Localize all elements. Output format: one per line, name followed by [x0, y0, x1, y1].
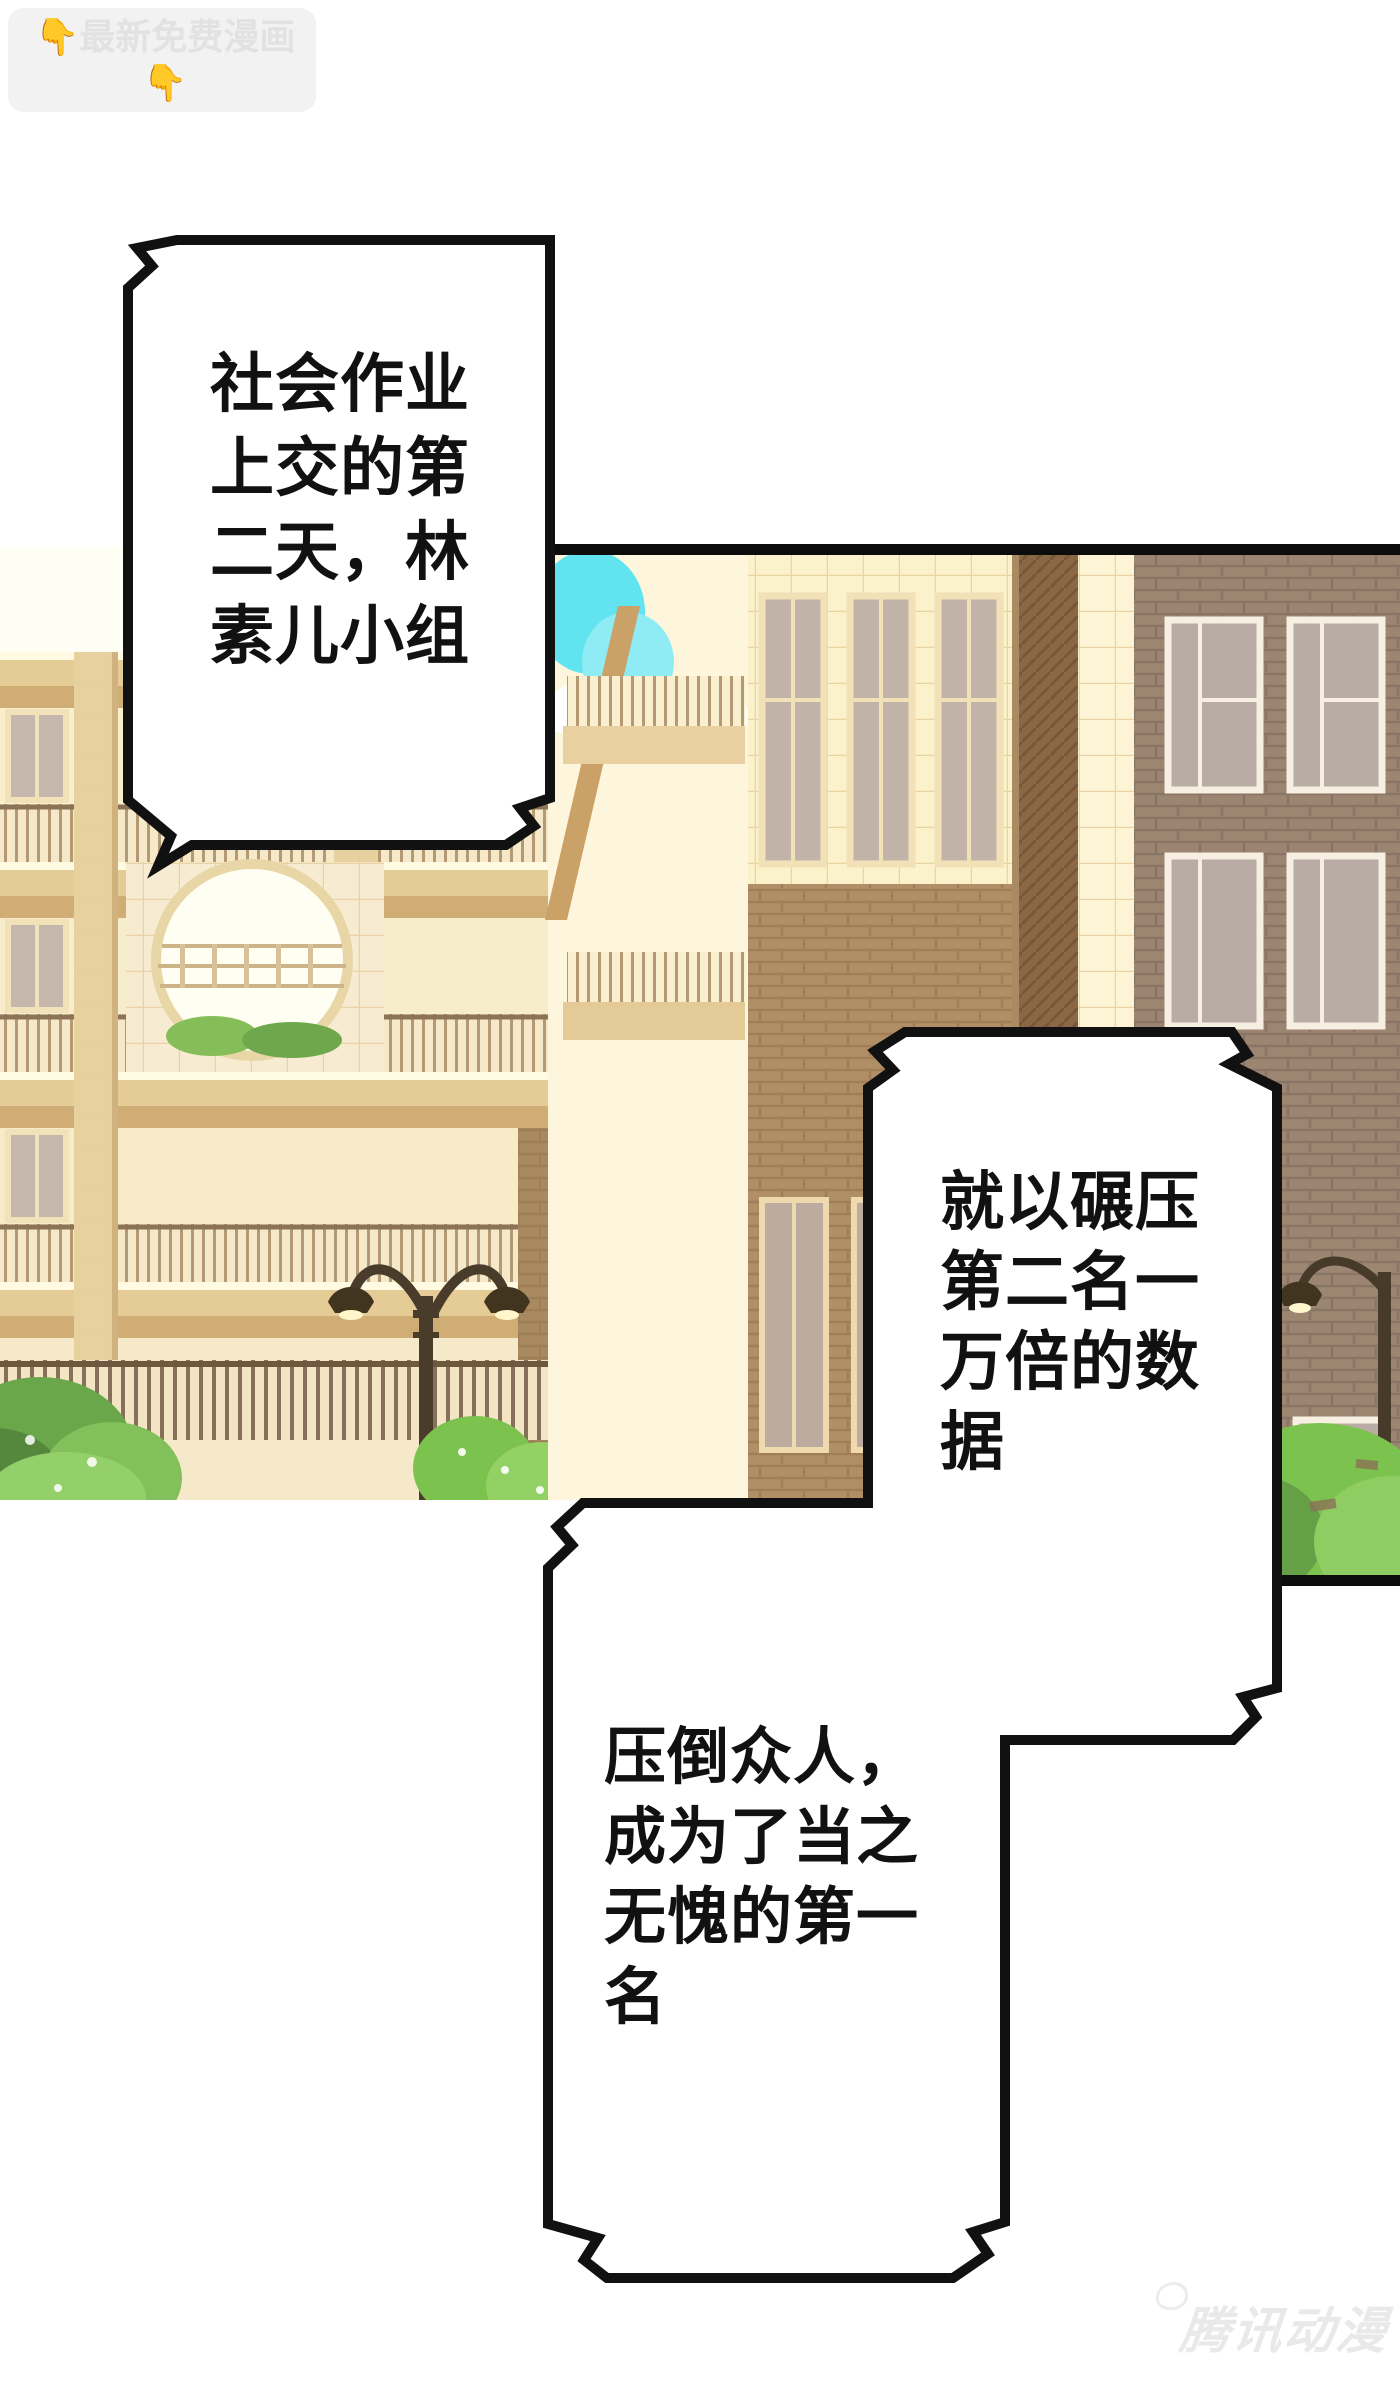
bubble-3-line: 无愧的第一 [604, 1878, 919, 1958]
bubble-1-line: 社会作业 [210, 342, 470, 426]
bubble-1-line: 素儿小组 [210, 594, 470, 678]
panel-top-border [420, 544, 1400, 555]
speech-bubble-1-text: 社会作业 上交的第 二天，林 素儿小组 [210, 342, 470, 678]
comic-page: 社会作业 上交的第 二天，林 素儿小组 就以碾压 第二名一 万倍的数 据 压倒众… [0, 0, 1400, 2387]
left-windows [8, 712, 66, 1220]
watermark-tencent-label: 腾讯动漫 [1177, 2303, 1391, 2359]
bubble-2-line: 据 [940, 1402, 1200, 1482]
bubble-3-line: 成为了当之 [604, 1798, 919, 1878]
bubble-2-line: 万倍的数 [940, 1322, 1200, 1402]
tower-windows-upper [762, 596, 1000, 864]
bubble-2-line: 就以碾压 [940, 1162, 1200, 1242]
bubble-2-line: 第二名一 [940, 1242, 1200, 1322]
bubble-1-line: 二天，林 [210, 510, 470, 594]
speech-bubble-3-text: 压倒众人， 成为了当之 无愧的第一 名 [604, 1718, 919, 2038]
panel-bottom-border [1270, 1575, 1400, 1586]
speech-bubble-2-text: 就以碾压 第二名一 万倍的数 据 [940, 1162, 1200, 1482]
bubble-3-line: 压倒众人， [604, 1718, 919, 1798]
watermark-site-url: www.baozimh.com [18, 106, 312, 112]
watermark-site-line1: 👇最新免费漫画👇 [18, 14, 312, 106]
moon-gate [126, 862, 384, 1072]
watermark-tencent-logo: 腾讯动漫 [1176, 2296, 1399, 2372]
bubble-3-line: 名 [604, 1958, 919, 2038]
mid-building [530, 546, 752, 1500]
bubble-1-line: 上交的第 [210, 426, 470, 510]
watermark-site-badge: 👇最新免费漫画👇 www.baozimh.com [8, 8, 316, 112]
